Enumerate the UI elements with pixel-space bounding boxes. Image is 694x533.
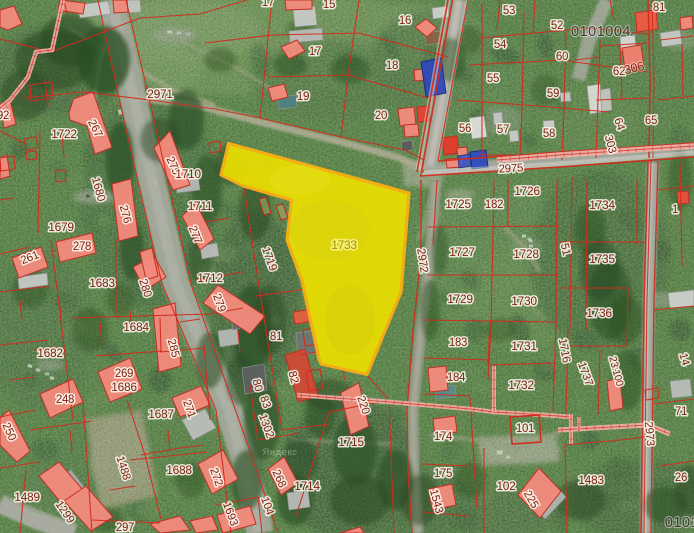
svg-text:2975: 2975 [498,162,523,175]
svg-text:278: 278 [73,241,91,253]
svg-text:59: 59 [547,88,559,100]
svg-text:65: 65 [645,115,657,127]
svg-text:1684: 1684 [123,320,149,334]
svg-text:1731: 1731 [511,339,537,353]
svg-text:1715: 1715 [338,435,364,449]
svg-text:20: 20 [375,110,387,122]
svg-text:1682: 1682 [37,346,63,360]
svg-text:26: 26 [675,472,687,484]
svg-text:2973: 2973 [642,421,656,446]
svg-text:0101004: 0101004 [571,24,631,40]
svg-text:1722: 1722 [51,127,77,141]
svg-text:19: 19 [297,91,309,103]
svg-text:60: 60 [556,51,568,63]
svg-text:18: 18 [386,60,398,72]
svg-text:51: 51 [558,242,572,256]
svg-text:52: 52 [551,20,563,32]
svg-text:102: 102 [496,479,516,493]
svg-text:1483: 1483 [578,473,604,487]
svg-text:248: 248 [56,394,74,406]
svg-text:1710: 1710 [175,167,201,181]
svg-text:1736: 1736 [586,306,612,320]
svg-text:15: 15 [323,0,335,11]
svg-text:1729: 1729 [447,292,473,306]
svg-text:1714: 1714 [294,479,320,493]
svg-text:71: 71 [675,406,687,418]
svg-text:297: 297 [116,522,134,533]
svg-text:1687: 1687 [148,407,174,421]
svg-text:17: 17 [309,46,321,58]
svg-text:1712: 1712 [197,271,223,285]
svg-text:Яндекс: Яндекс [263,447,298,458]
svg-text:1679: 1679 [48,220,74,234]
svg-text:183: 183 [449,337,467,349]
svg-text:269: 269 [115,368,133,380]
svg-text:1733: 1733 [331,238,357,252]
svg-text:81: 81 [653,2,665,14]
svg-text:1489: 1489 [14,490,40,504]
svg-text:56: 56 [459,123,471,135]
svg-text:58: 58 [543,128,555,140]
svg-text:182: 182 [485,199,503,211]
svg-text:1727: 1727 [449,245,475,259]
svg-text:53: 53 [503,5,515,17]
svg-text:1726: 1726 [514,184,540,198]
svg-text:1732: 1732 [508,378,534,392]
svg-text:1734: 1734 [589,198,615,212]
svg-text:1730: 1730 [511,294,537,308]
svg-text:1688: 1688 [166,463,192,477]
svg-text:55: 55 [487,73,499,85]
svg-text:174: 174 [434,431,453,443]
svg-text:1735: 1735 [589,252,615,266]
svg-text:184: 184 [447,372,466,384]
svg-text:0101: 0101 [665,515,694,531]
svg-text:1686: 1686 [111,380,137,394]
svg-text:54: 54 [494,39,507,51]
svg-text:57: 57 [497,124,509,136]
svg-text:175: 175 [434,468,452,480]
svg-text:1683: 1683 [89,276,115,290]
svg-text:81: 81 [270,331,282,343]
svg-text:1711: 1711 [188,199,213,213]
svg-text:101: 101 [516,423,534,435]
svg-text:2971: 2971 [147,87,173,101]
svg-text:1728: 1728 [513,247,539,261]
svg-text:1725: 1725 [445,197,471,211]
svg-text:92: 92 [0,110,9,122]
svg-text:17: 17 [262,0,274,9]
svg-text:1: 1 [672,204,678,216]
svg-text:16: 16 [399,15,411,27]
